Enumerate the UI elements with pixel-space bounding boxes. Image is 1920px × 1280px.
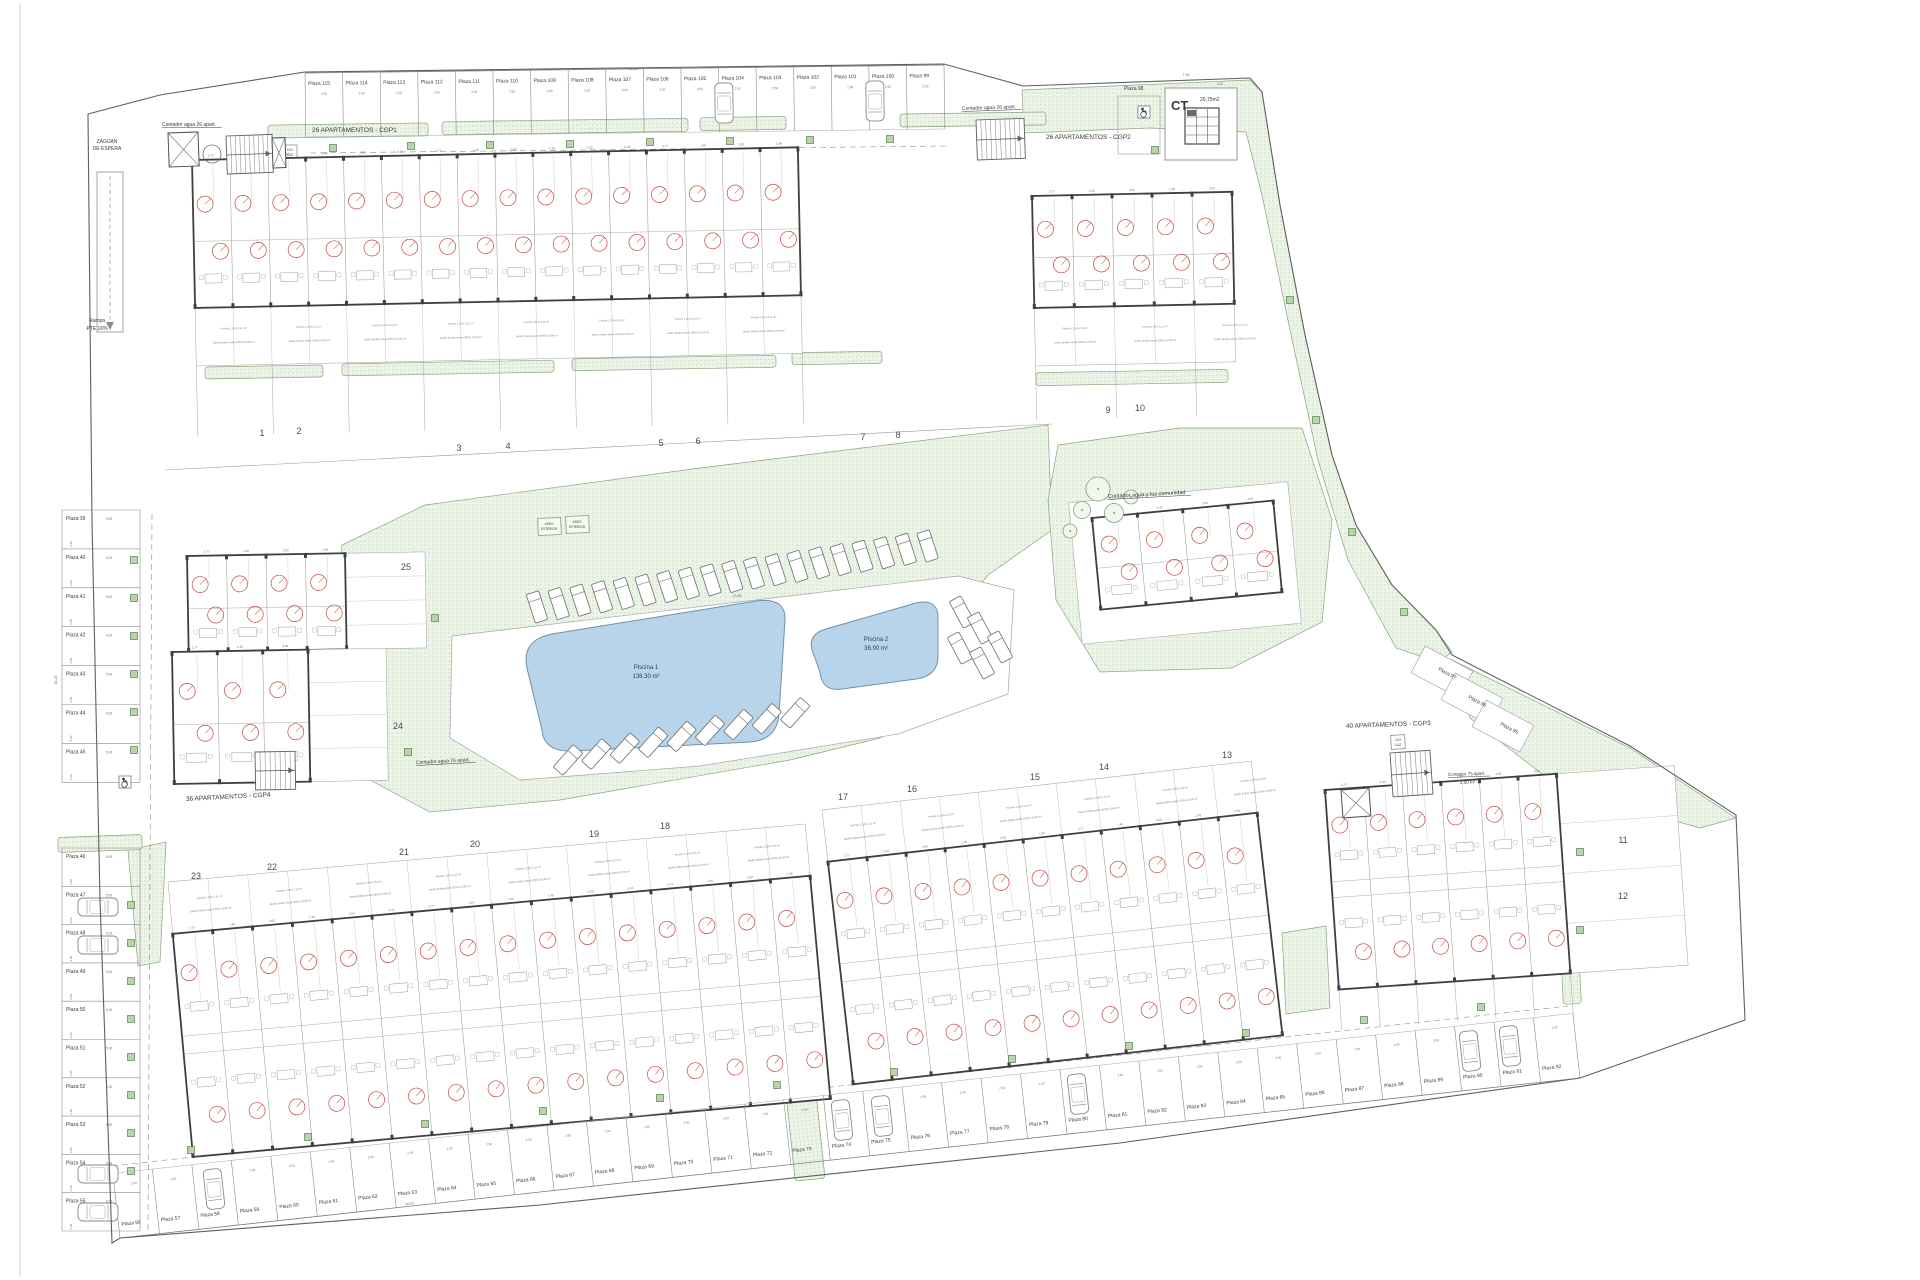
- dimension-text: 6.32: [1039, 831, 1046, 836]
- dimension-text: 1.48: [776, 142, 782, 146]
- wall-pier: [1181, 508, 1184, 513]
- plan-label: OCI: [287, 148, 293, 152]
- dimension-text: 1.40: [1380, 780, 1386, 784]
- wall-pier: [269, 302, 272, 307]
- wall-pier: [1216, 816, 1220, 821]
- car-body: [871, 1095, 893, 1137]
- stall-dimension: 5.00: [106, 932, 112, 936]
- stall-divider: [1415, 1031, 1422, 1096]
- wall-pier: [251, 925, 254, 930]
- utility-box: [188, 1147, 195, 1154]
- utility-box: [128, 1130, 135, 1137]
- unit-number: 8: [895, 430, 900, 440]
- utility-box: [1313, 417, 1320, 424]
- dimension-label: 42.84: [628, 66, 639, 71]
- parking-stall-label: Plaza 88: [1384, 1081, 1404, 1089]
- wall-pier: [1555, 773, 1558, 778]
- plan-label: ASEO: [545, 522, 554, 526]
- stall-dimension: 2.50: [249, 1168, 256, 1173]
- stall-dimension: 2.50: [69, 879, 73, 885]
- wall-pier: [826, 861, 830, 866]
- parking-stall-label: Plaza 80: [1068, 1116, 1088, 1124]
- stall-dimension: 2.50: [69, 1147, 73, 1153]
- car-icon: [871, 1095, 893, 1137]
- stall-dimension: 2.50: [1354, 1047, 1361, 1052]
- dimension-text: 2.50: [1495, 772, 1501, 776]
- elevator: [1341, 788, 1371, 818]
- dimension-text: 2.50: [587, 146, 593, 150]
- building-block: Porche 1.25% 2.11 m²Jardín (índice verde…: [190, 141, 805, 436]
- wall-pier: [689, 886, 692, 891]
- dimension-text: 2.77: [844, 853, 851, 858]
- plan-label: Contador agua 26 apart.: [162, 122, 216, 128]
- wall-pier: [418, 154, 421, 159]
- garden-tail: [1416, 984, 1419, 1024]
- wall-pier: [231, 1149, 234, 1154]
- utility-box: [807, 137, 814, 144]
- stall-divider: [1178, 1057, 1185, 1122]
- stall-dimension: 2.50: [920, 1094, 927, 1099]
- parking-baseline: [305, 65, 944, 73]
- parking-stall-label: Plaza 114: [346, 80, 368, 86]
- parking-stall-label: Plaza 102: [797, 75, 820, 81]
- wall-pier: [185, 555, 188, 560]
- parking-stall-label: Plaza 77: [950, 1129, 970, 1137]
- car-icon: [203, 1168, 225, 1210]
- stall-dimension: 5.00: [106, 1047, 112, 1051]
- wall-pier: [1007, 1062, 1011, 1067]
- unit-number: 15: [1030, 772, 1040, 782]
- stall-divider: [350, 1147, 357, 1212]
- unit-number: 2: [296, 426, 301, 436]
- stall-divider: [1139, 1061, 1146, 1126]
- stall-dimension: 2.50: [69, 696, 73, 702]
- utility-box: [887, 136, 894, 143]
- wall-pier: [216, 650, 219, 655]
- car-body: [1499, 1025, 1521, 1067]
- stall-dimension: 2.50: [999, 1086, 1006, 1091]
- wall-pier: [724, 293, 727, 298]
- stall-dimension: 2.50: [69, 955, 73, 961]
- parking-stall-label: Plaza 108: [571, 77, 594, 83]
- plan-label: Contador 75 apart.: [1448, 771, 1486, 777]
- utility-box: [647, 139, 654, 146]
- unit-number: 14: [1099, 762, 1109, 772]
- equipment-cell: [1187, 110, 1196, 116]
- parking-stall-label: Plaza 104: [722, 76, 745, 82]
- wall-pier: [607, 150, 610, 155]
- garden-strip: [1034, 304, 1235, 366]
- wall-pier: [629, 1113, 632, 1118]
- dimension-text: 2.50: [349, 911, 356, 916]
- handicap-icon: [119, 776, 131, 788]
- wall-pier: [1230, 191, 1233, 196]
- stall-dimension: 2.50: [847, 85, 853, 89]
- dimension-label: 23.96: [732, 594, 741, 599]
- building-block: 2.771.403.001.482.506.32: [1323, 760, 1691, 1030]
- parking-stall-label: Plaza 44: [66, 711, 86, 717]
- stall-dimension: 2.50: [604, 1129, 611, 1134]
- parking-stall-label: Plaza 79: [1029, 1120, 1049, 1128]
- stall-dimension: 5.00: [106, 970, 112, 974]
- stall-dimension: 2.50: [131, 1181, 138, 1186]
- dimension-text: 1.48: [1195, 813, 1202, 818]
- utility-box: [1349, 529, 1356, 536]
- stall-dimension: 2.50: [170, 1176, 177, 1181]
- parking-stall-label: Plaza 42: [66, 633, 86, 639]
- wall-pier: [943, 847, 947, 852]
- wall-pier: [683, 149, 686, 154]
- wall-pier: [194, 304, 197, 309]
- dimension-label: 7.30: [1183, 73, 1190, 77]
- dimension-text: 3.00: [283, 548, 289, 552]
- stall-dimension: 5.00: [106, 750, 112, 754]
- parking-stall-label: Plaza 43: [66, 672, 86, 678]
- stall-dimension: 2.50: [772, 86, 778, 90]
- car-icon: [1459, 1030, 1481, 1072]
- utility-box: [1577, 849, 1584, 856]
- wall-pier: [796, 146, 799, 151]
- parking-stall-label: Plaza 87: [1344, 1086, 1364, 1094]
- unit-number: 6: [695, 436, 700, 446]
- dimension-text: 1.48: [961, 840, 968, 845]
- plan-label: 20,75m2: [1200, 97, 1220, 103]
- parking-stall-label: Plaza 103: [759, 75, 782, 81]
- parking-stall-label: Plaza 111: [458, 79, 480, 85]
- dimension-text: 2.77: [435, 149, 441, 153]
- parking-stall-label: Plaza 82: [1147, 1107, 1167, 1115]
- wall-pier: [531, 152, 534, 157]
- wall-pier: [1478, 778, 1481, 783]
- pool-area-label: 138.30 m²: [632, 674, 659, 680]
- stair: [255, 751, 296, 790]
- utility-box: [1287, 297, 1294, 304]
- stall-dimension: 2.50: [1196, 1064, 1203, 1069]
- unit-number: 4: [505, 441, 510, 451]
- parking-stall-label: Plaza 75: [871, 1137, 891, 1145]
- wall-pier: [171, 933, 174, 938]
- unit-number: 18: [660, 821, 670, 831]
- parking-stall-label: Plaza 110: [496, 78, 518, 84]
- parking-stall-label: Plaza 56: [121, 1220, 141, 1228]
- stall-divider: [389, 1143, 396, 1208]
- wall-pier: [729, 882, 732, 887]
- stall-divider: [1376, 1035, 1383, 1100]
- site-plan-drawing: Piscina 1138.30 m²Piscina 236.90 m² Porc…: [0, 0, 1920, 1280]
- wall-pier: [865, 856, 869, 861]
- wall-pier: [311, 1142, 314, 1147]
- utility-box: [131, 557, 138, 564]
- green-strip: [442, 118, 688, 134]
- pool-label: Piscina 2: [864, 637, 889, 643]
- dimension-text: 2.77: [1078, 826, 1085, 831]
- wall-pier: [218, 779, 221, 784]
- building-block: Porche 1.25% 2.11 m²Jardín (índice verde…: [167, 824, 832, 1158]
- wall-pier: [1193, 301, 1196, 306]
- wall-pier: [304, 157, 307, 162]
- plan-label: 3.00 m²: [1460, 779, 1476, 785]
- stall-dimension: 2.50: [959, 1090, 966, 1095]
- wall-pier: [410, 911, 413, 916]
- wall-pier: [610, 295, 613, 300]
- parking-stall-label: Plaza 62: [358, 1194, 378, 1202]
- dimension-text: 3.00: [1156, 818, 1163, 823]
- dimension-text: 3.00: [1129, 188, 1135, 192]
- stall-dimension: 2.50: [810, 86, 816, 90]
- stall-divider: [271, 1156, 278, 1221]
- utility-box: [330, 145, 337, 152]
- dimension-text: 1.48: [309, 915, 316, 920]
- utility-box: [540, 1108, 547, 1115]
- parking-stall-label: Plaza 99: [910, 73, 930, 79]
- stair: [1390, 750, 1433, 797]
- utility-box: [891, 1069, 898, 1076]
- wall-pier: [769, 878, 772, 883]
- stall-dimension: 5.00: [106, 712, 112, 716]
- plan-label: DE ESPERA: [93, 146, 122, 152]
- dimension-text: 3.00: [511, 147, 517, 151]
- stall-divider: [429, 1139, 436, 1204]
- parking-stall-label: Plaza 78: [989, 1124, 1009, 1132]
- pool-area-label: 36.90 m²: [864, 646, 888, 652]
- building-outline: [1032, 192, 1234, 308]
- stall-divider: [1573, 1013, 1580, 1078]
- wall-pier: [851, 1080, 855, 1085]
- car-icon: [78, 1165, 118, 1183]
- dimension-text: 2.50: [1209, 186, 1215, 190]
- unit-number: 5: [658, 438, 663, 448]
- wall-pier: [1280, 588, 1283, 593]
- stall-dimension: 2.50: [396, 91, 402, 95]
- building-outline: [828, 813, 1283, 1084]
- stall-divider: [547, 1126, 554, 1191]
- parking-stall-label: Plaza 66: [516, 1176, 536, 1184]
- wall-pier: [225, 554, 228, 559]
- handicap-icon: [1138, 106, 1150, 118]
- wall-pier: [1202, 1040, 1206, 1045]
- utility-box: [128, 978, 135, 985]
- dimension-label: 46.57: [405, 1202, 414, 1207]
- dimension-text: 1.48: [321, 151, 327, 155]
- unit-number: 24: [393, 721, 403, 731]
- utility-box: [422, 1121, 429, 1128]
- garden-note: Porche 1.25% 2.11 m²: [751, 315, 777, 320]
- car-icon: [78, 898, 118, 916]
- plan-label: Contador agua 26 apart.: [962, 104, 1016, 112]
- wall-pier: [1163, 1045, 1167, 1050]
- wall-pier: [1136, 512, 1139, 517]
- dimension-label: 16.28: [54, 676, 58, 685]
- utility-box: [1243, 1030, 1250, 1037]
- stall-divider: [981, 1078, 988, 1143]
- utility-box: [128, 1092, 135, 1099]
- wall-pier: [1090, 517, 1093, 522]
- wall-pier: [982, 843, 986, 848]
- stall-dimension: 5.00: [106, 1123, 112, 1127]
- dimension-text: 1.40: [473, 148, 479, 152]
- stall-dimension: 2.50: [683, 1120, 690, 1125]
- garden-note: Porche 1.25% 2.11 m²: [372, 323, 398, 328]
- stall-divider: [794, 67, 795, 131]
- stair: [226, 134, 273, 174]
- dimension-text: 2.77: [667, 882, 674, 887]
- wall-pier: [1235, 592, 1238, 597]
- stall-divider: [1060, 1070, 1067, 1135]
- dimension-text: 1.40: [468, 900, 475, 905]
- parking-stall-label: Plaza 86: [1305, 1090, 1325, 1098]
- parking-stall-label: Plaza 65: [476, 1181, 496, 1189]
- stall-dimension: 2.50: [407, 1151, 414, 1156]
- site-plan-page: Piscina 1138.30 m²Piscina 236.90 m² Porc…: [0, 0, 1920, 1280]
- stall-dimension: 2.50: [1394, 1042, 1401, 1047]
- plan-label: ZAGUAN: [97, 139, 118, 145]
- dimension-text: 2.77: [662, 144, 668, 148]
- wall-pier: [211, 929, 214, 934]
- wall-pier: [490, 904, 493, 909]
- green-strip: [342, 360, 554, 376]
- stall-dimension: 2.50: [1236, 1060, 1243, 1065]
- wall-pier: [1256, 812, 1260, 817]
- car-icon: [78, 936, 118, 954]
- stall-dimension: 5.00: [106, 855, 112, 859]
- parking-stall-label: Plaza 52: [66, 1084, 86, 1090]
- unit-number: 13: [1222, 750, 1232, 760]
- parking-stall-label: Plaza 81: [1108, 1112, 1128, 1120]
- car-body: [1067, 1073, 1089, 1115]
- wall-pier: [470, 1127, 473, 1132]
- dimension-label: 4.63: [1217, 82, 1223, 86]
- utility-box: [1478, 1004, 1485, 1011]
- unit-number: 19: [589, 829, 599, 839]
- wall-pier: [350, 1138, 353, 1143]
- unit-number: 20: [470, 839, 480, 849]
- wall-pier: [1021, 838, 1025, 843]
- parking-stall-label: Plaza 67: [555, 1172, 575, 1180]
- dimension-text: 1.40: [237, 645, 243, 649]
- utility-box: [128, 940, 135, 947]
- wall-pier: [808, 875, 811, 880]
- stall-dimension: 2.50: [69, 735, 73, 741]
- wall-pier: [829, 1095, 832, 1100]
- car-body: [831, 1099, 853, 1141]
- parking-stall-label: Plaza 112: [421, 79, 443, 85]
- parking-stall-label: Plaza 90: [1463, 1073, 1483, 1081]
- utility-box: [1009, 1056, 1016, 1063]
- stall-divider: [508, 1130, 515, 1195]
- tree-center: [1097, 488, 1099, 490]
- garden-note: Porche 1.25% 2.11 m²: [1142, 324, 1168, 329]
- wall-pier: [749, 1102, 752, 1107]
- parking-stall-label: Plaza 63: [397, 1189, 417, 1197]
- wall-pier: [1033, 304, 1036, 309]
- dimension-text: 6.32: [397, 150, 403, 154]
- stall-dimension: 2.50: [697, 87, 703, 91]
- utility-box: [128, 902, 135, 909]
- dimension-text: 1.48: [787, 871, 794, 876]
- plan-label: 36 APARTAMENTOS - CGP4: [186, 792, 271, 803]
- wall-pier: [1177, 820, 1181, 825]
- dimension-text: 1.40: [229, 922, 236, 927]
- stall-dimension: 2.50: [1315, 1051, 1322, 1056]
- garden-note: Porche 1.25% 2.11 m²: [675, 316, 701, 321]
- garden-tail: [1339, 990, 1342, 1030]
- dimension-text: 1.40: [243, 549, 249, 553]
- garden-note: Porche 1.25% 2.11 m²: [523, 320, 549, 325]
- dimension-text: 6.32: [624, 145, 630, 149]
- dimension-text: 2.50: [588, 889, 595, 894]
- parking-stall-label: Plaza 74: [832, 1142, 852, 1150]
- garden-note: Porche 1.25% 2.11 m²: [221, 326, 247, 331]
- tree-center: [1113, 512, 1115, 514]
- parking-stall-label: Plaza 69: [634, 1163, 654, 1171]
- stair: [976, 118, 1025, 160]
- dimension-text: 6.32: [388, 908, 395, 913]
- dimension-text: 2.77: [208, 154, 214, 158]
- utility-box: [1126, 1043, 1133, 1050]
- stall-divider: [863, 1091, 870, 1156]
- stall-dimension: 2.50: [69, 774, 73, 780]
- wall-pier: [890, 1076, 894, 1081]
- handicap-head: [1141, 108, 1144, 111]
- stall-dimension: 2.50: [565, 1133, 572, 1138]
- dimension-text: 1.40: [883, 849, 890, 854]
- stall-divider: [231, 1160, 238, 1225]
- dimension-text: 1.40: [1156, 505, 1163, 510]
- stall-dimension: 5.00: [106, 673, 112, 677]
- wall-pier: [645, 149, 648, 154]
- stall-dimension: 2.50: [659, 87, 665, 91]
- car-icon: [78, 1203, 118, 1221]
- unit-number: 16: [907, 784, 917, 794]
- wall-pier: [1226, 504, 1229, 509]
- wall-pier: [762, 292, 765, 297]
- utility-box: [131, 595, 138, 602]
- wall-pier: [534, 297, 537, 302]
- dimension-text: 2.77: [189, 926, 196, 931]
- wall-pier: [261, 649, 264, 654]
- dimension-text: 3.00: [508, 897, 515, 902]
- unit-number: 17: [838, 792, 848, 802]
- parking-stall-label: Plaza 47: [66, 892, 86, 898]
- stall-dimension: 2.50: [1275, 1055, 1282, 1060]
- dimension-text: 2.77: [1341, 782, 1347, 786]
- handicap-head: [122, 778, 125, 781]
- plan-label: Plaza 98: [1124, 86, 1144, 92]
- dimension-text: 1.40: [1089, 189, 1095, 193]
- wall-pier: [1030, 195, 1033, 200]
- utility-box: [305, 1134, 312, 1141]
- utility-box: [657, 1095, 664, 1102]
- unit-number: 1: [259, 428, 264, 438]
- dimension-text: 1.48: [548, 893, 555, 898]
- utility-box: [1361, 1017, 1368, 1024]
- stall-dimension: 2.50: [69, 1185, 73, 1191]
- dimension-text: 6.32: [627, 886, 634, 891]
- stall-dimension: 2.50: [368, 1155, 375, 1160]
- building-block: 2.771.403.001.48: [185, 546, 426, 653]
- dimension-text: 3.00: [747, 875, 754, 880]
- car-icon: [1067, 1073, 1089, 1115]
- wall-pier: [1233, 300, 1236, 305]
- wall-pier: [1046, 1058, 1050, 1063]
- stall-divider: [1297, 1044, 1304, 1109]
- wall-pier: [530, 900, 533, 905]
- dimension-text: 1.48: [1169, 187, 1175, 191]
- tree-center: [1081, 509, 1083, 511]
- tree-center: [1069, 530, 1071, 532]
- unit-number: 23: [191, 871, 201, 881]
- car-body: [1459, 1030, 1481, 1072]
